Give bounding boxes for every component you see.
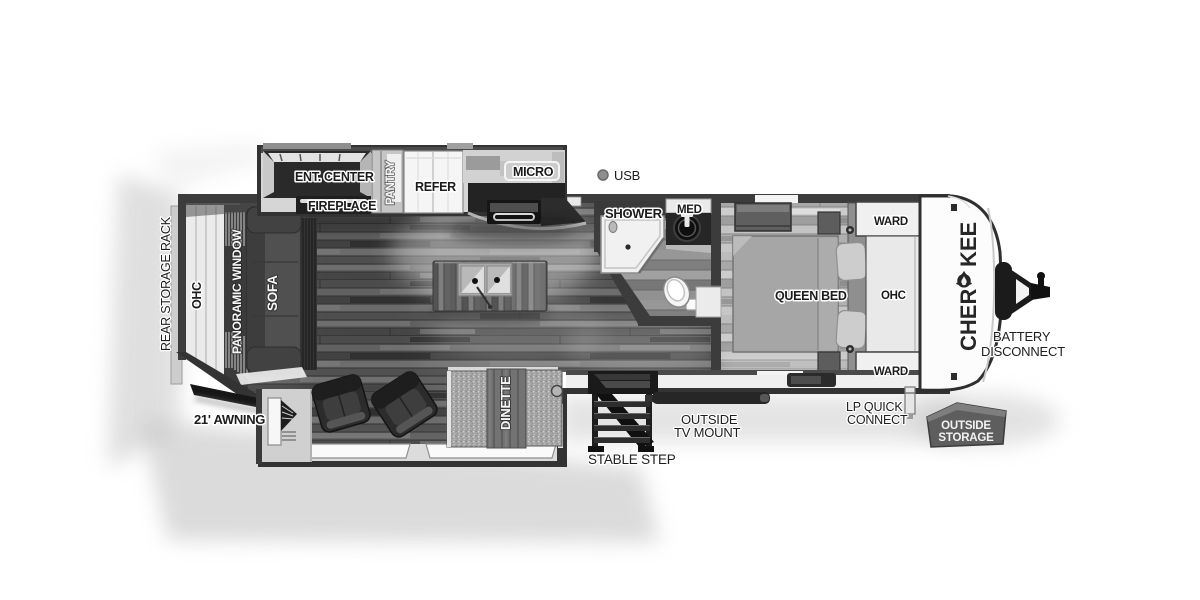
svg-text:TV MOUNT: TV MOUNT bbox=[674, 425, 741, 440]
svg-text:QUEEN BED: QUEEN BED bbox=[775, 289, 847, 303]
svg-text:REFER: REFER bbox=[415, 180, 456, 194]
svg-text:21' AWNING: 21' AWNING bbox=[194, 412, 265, 427]
svg-text:DISCONNECT: DISCONNECT bbox=[981, 344, 1065, 359]
svg-text:CHER: CHER bbox=[956, 289, 981, 351]
svg-text:PANORAMIC WINDOW: PANORAMIC WINDOW bbox=[230, 229, 244, 354]
svg-text:STORAGE: STORAGE bbox=[938, 432, 994, 444]
svg-text:SOFA: SOFA bbox=[265, 275, 280, 311]
svg-text:OUTSIDE: OUTSIDE bbox=[941, 420, 991, 432]
svg-text:USB: USB bbox=[614, 168, 640, 183]
svg-text:FIREPLACE: FIREPLACE bbox=[308, 199, 376, 213]
svg-text:SHOWER: SHOWER bbox=[605, 206, 663, 221]
svg-text:OHC: OHC bbox=[881, 290, 906, 302]
svg-text:WARD: WARD bbox=[874, 366, 908, 378]
svg-text:PANTRY: PANTRY bbox=[385, 160, 397, 205]
svg-text:MICRO: MICRO bbox=[513, 165, 554, 179]
svg-text:STABLE STEP: STABLE STEP bbox=[588, 452, 676, 467]
svg-text:DINETTE: DINETTE bbox=[498, 376, 513, 430]
svg-text:BATTERY: BATTERY bbox=[993, 329, 1051, 344]
svg-text:REAR STORAGE RACK: REAR STORAGE RACK bbox=[159, 216, 173, 351]
svg-text:KEE: KEE bbox=[956, 222, 981, 267]
svg-text:CONNECT: CONNECT bbox=[847, 413, 908, 427]
svg-text:LP QUICK: LP QUICK bbox=[846, 400, 903, 414]
svg-text:ENT. CENTER: ENT. CENTER bbox=[295, 170, 374, 184]
svg-text:OHC: OHC bbox=[190, 282, 204, 309]
svg-text:WARD: WARD bbox=[874, 216, 908, 228]
svg-text:MED: MED bbox=[677, 204, 702, 216]
